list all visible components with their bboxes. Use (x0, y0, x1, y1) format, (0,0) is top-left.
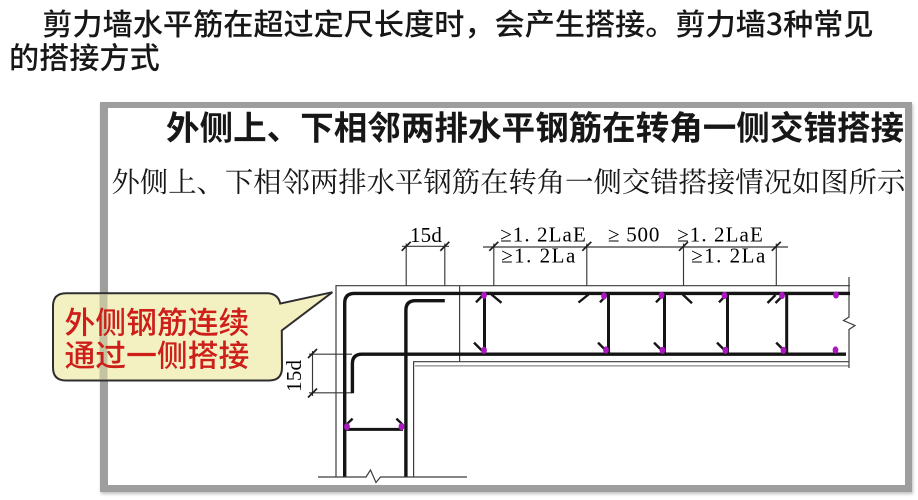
svg-text:≥ 500: ≥ 500 (608, 223, 660, 247)
svg-text:≥1. 2La: ≥1. 2La (501, 244, 577, 268)
svg-text:≥1. 2La: ≥1. 2La (691, 244, 767, 268)
svg-text:15d: 15d (410, 223, 442, 247)
svg-text:15d: 15d (282, 359, 306, 391)
